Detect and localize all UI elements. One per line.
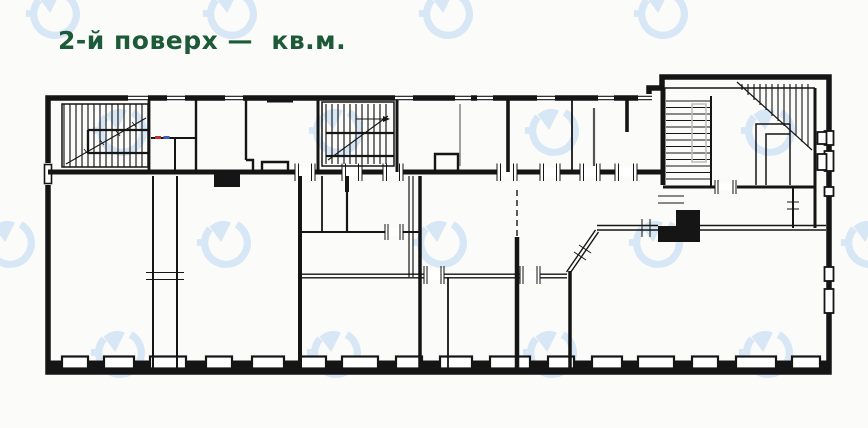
staircase-left	[62, 104, 149, 167]
diagonal-wall	[567, 210, 827, 274]
watermark-logo-icon	[419, 0, 477, 43]
staircase-top-right	[658, 82, 827, 228]
watermark-grid	[0, 0, 868, 382]
watermark-logo-icon	[197, 214, 255, 272]
page-title: 2-й поверх — кв.м.	[58, 26, 346, 55]
bottom-wall-windows	[48, 357, 829, 371]
staircase-top-right-flight	[666, 101, 711, 179]
floor-plan-canvas	[0, 0, 868, 428]
watermark-logo-icon	[0, 214, 39, 272]
watermark-logo-icon	[841, 214, 868, 272]
page: 2-й поверх — кв.м.	[0, 0, 868, 428]
watermark-logo-icon	[525, 102, 583, 160]
watermark-logo-icon	[634, 0, 692, 43]
